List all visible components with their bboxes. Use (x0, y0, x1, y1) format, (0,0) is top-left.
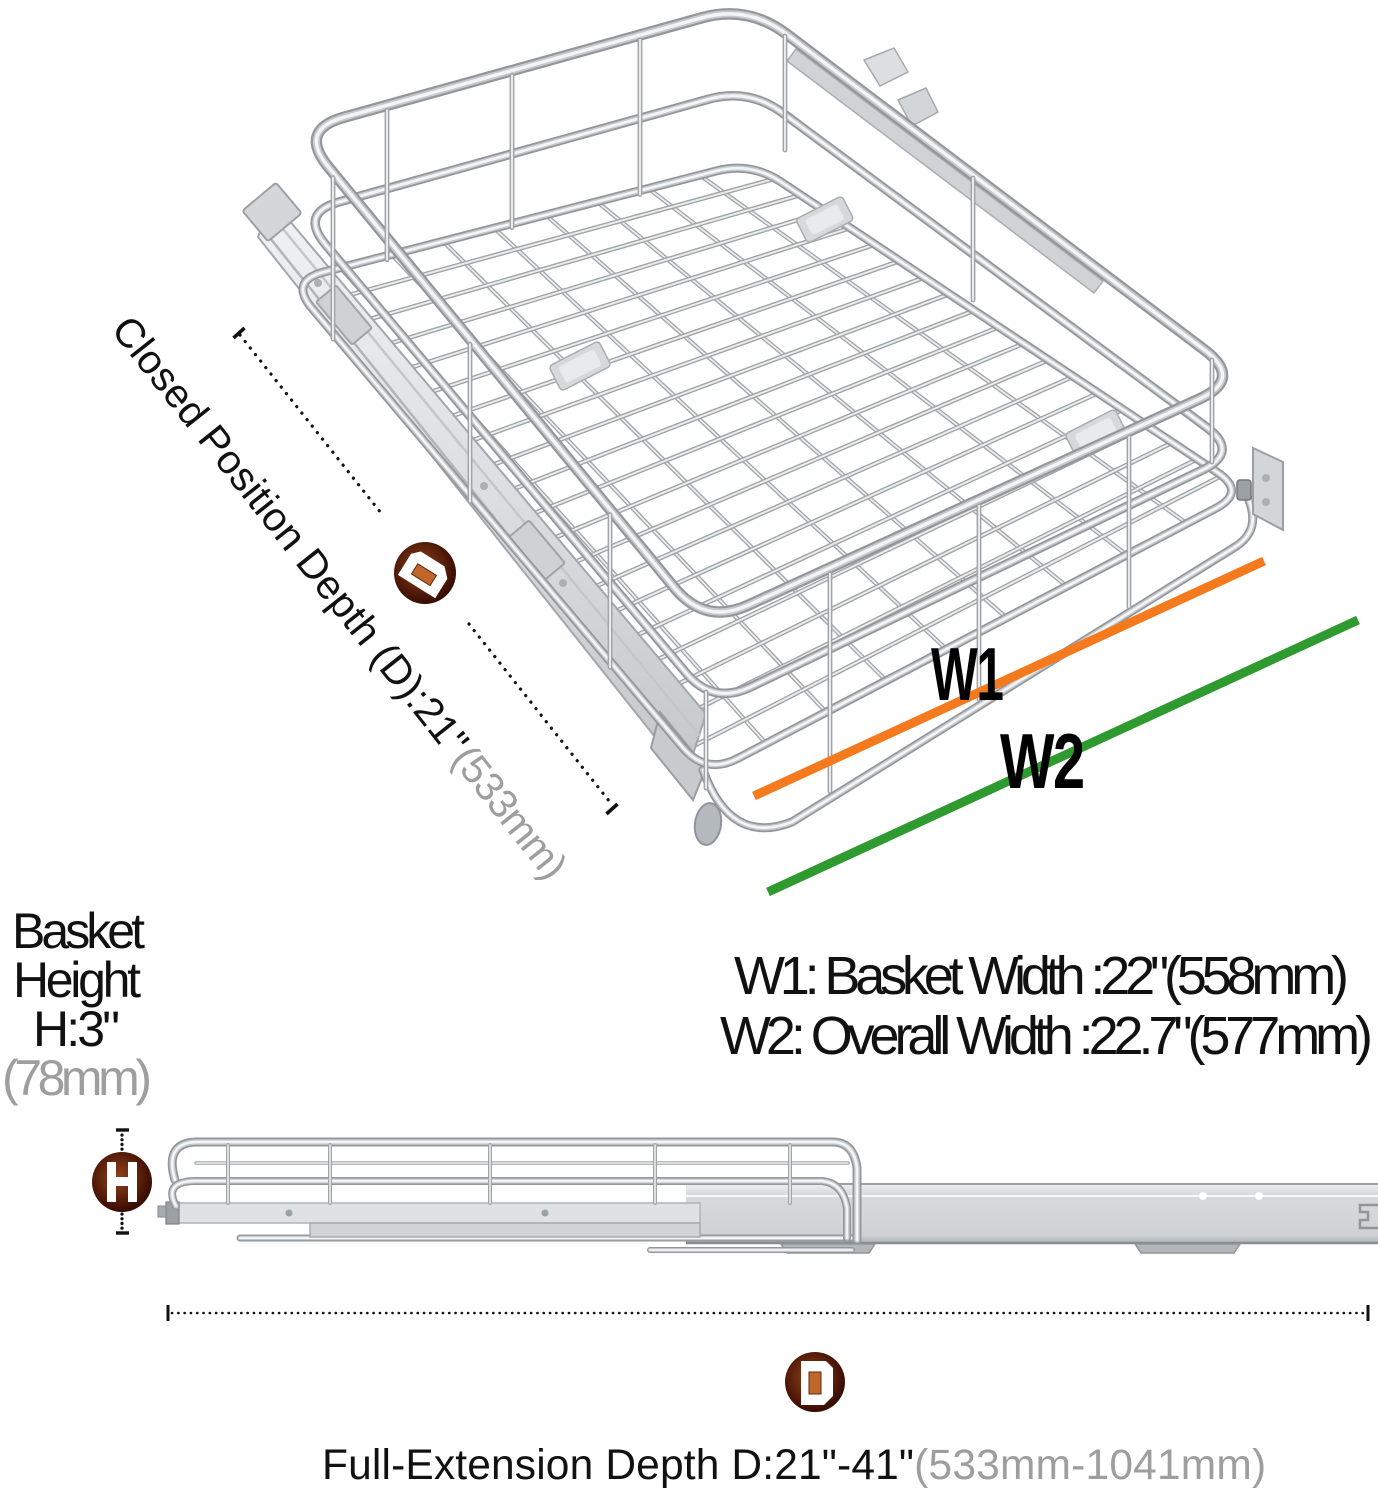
svg-text:W2: W2 (1000, 718, 1084, 806)
svg-text:Basket: Basket (12, 903, 145, 959)
svg-text:Height: Height (13, 952, 141, 1008)
svg-text:H:3": H:3" (33, 1001, 120, 1057)
svg-text:(78mm): (78mm) (2, 1050, 152, 1106)
svg-text:W1: Basket Width :22"(558mm): W1: Basket Width :22"(558mm) (734, 946, 1349, 1006)
svg-text:W1: W1 (931, 633, 1003, 717)
svg-text:W2: Overall Width :22.7"(577mm: W2: Overall Width :22.7"(577mm) (720, 1006, 1373, 1066)
svg-text:Full-Extension Depth D:21"-41": Full-Extension Depth D:21"-41"(533mm-104… (322, 1442, 1266, 1489)
